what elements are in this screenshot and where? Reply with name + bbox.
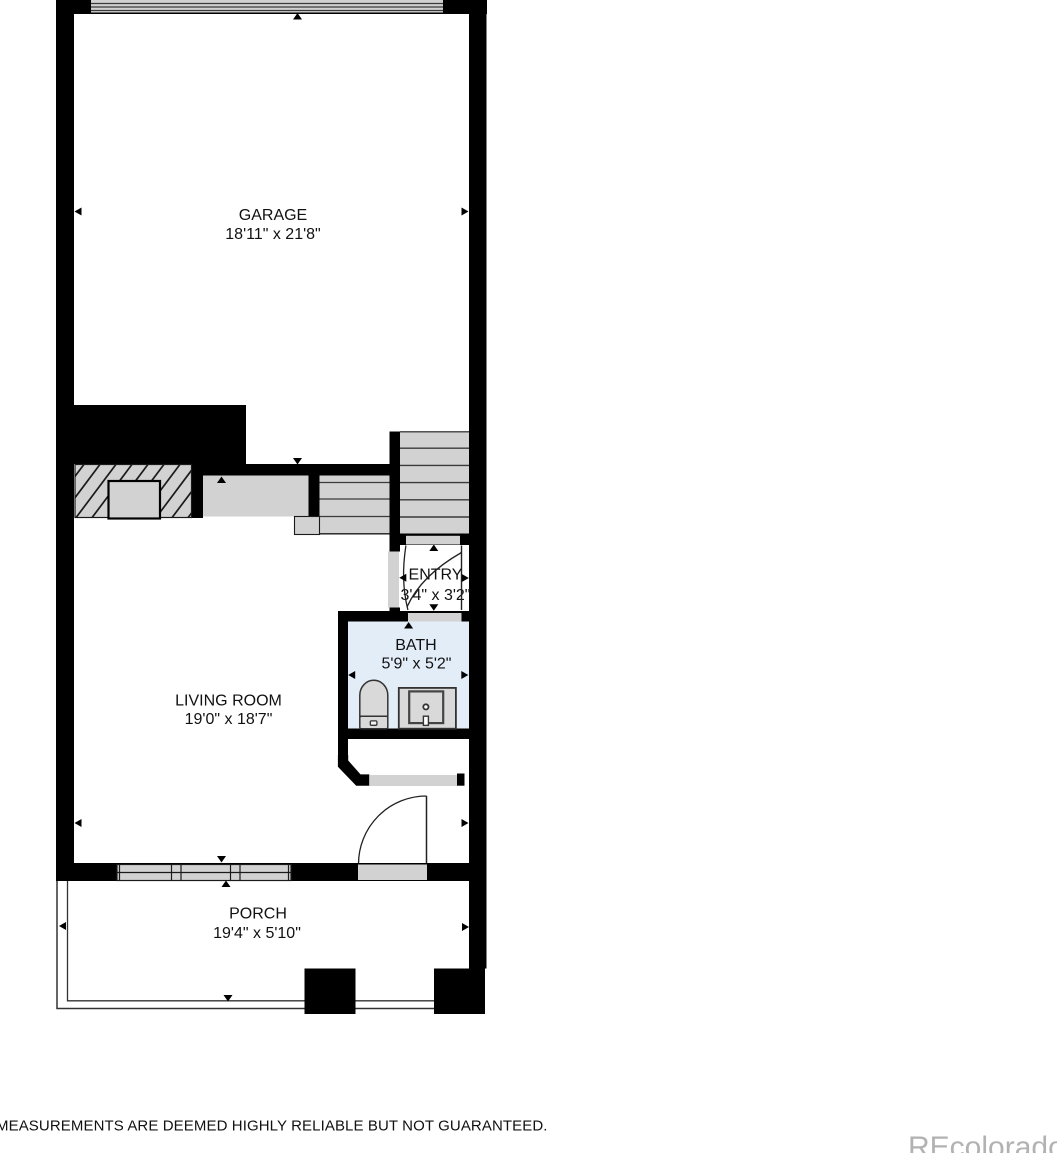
svg-text:BATH: BATH [395,637,436,654]
svg-text:ENTRY: ENTRY [409,567,463,584]
svg-text:5'9" x 5'2": 5'9" x 5'2" [382,656,452,673]
svg-text:GARAGE: GARAGE [239,207,307,224]
svg-text:MEASUREMENTS ARE DEEMED HIGHLY: MEASUREMENTS ARE DEEMED HIGHLY RELIABLE … [0,1118,548,1135]
svg-text:19'0" x 18'7": 19'0" x 18'7" [185,711,273,728]
svg-text:REcolorado: REcolorado [908,1131,1057,1153]
svg-text:LIVING ROOM: LIVING ROOM [175,693,282,710]
svg-text:18'11" x 21'8": 18'11" x 21'8" [225,226,320,243]
svg-text:PORCH: PORCH [229,906,287,923]
svg-text:3'4" x 3'2": 3'4" x 3'2" [401,587,471,604]
svg-text:19'4" x 5'10": 19'4" x 5'10" [213,925,301,942]
